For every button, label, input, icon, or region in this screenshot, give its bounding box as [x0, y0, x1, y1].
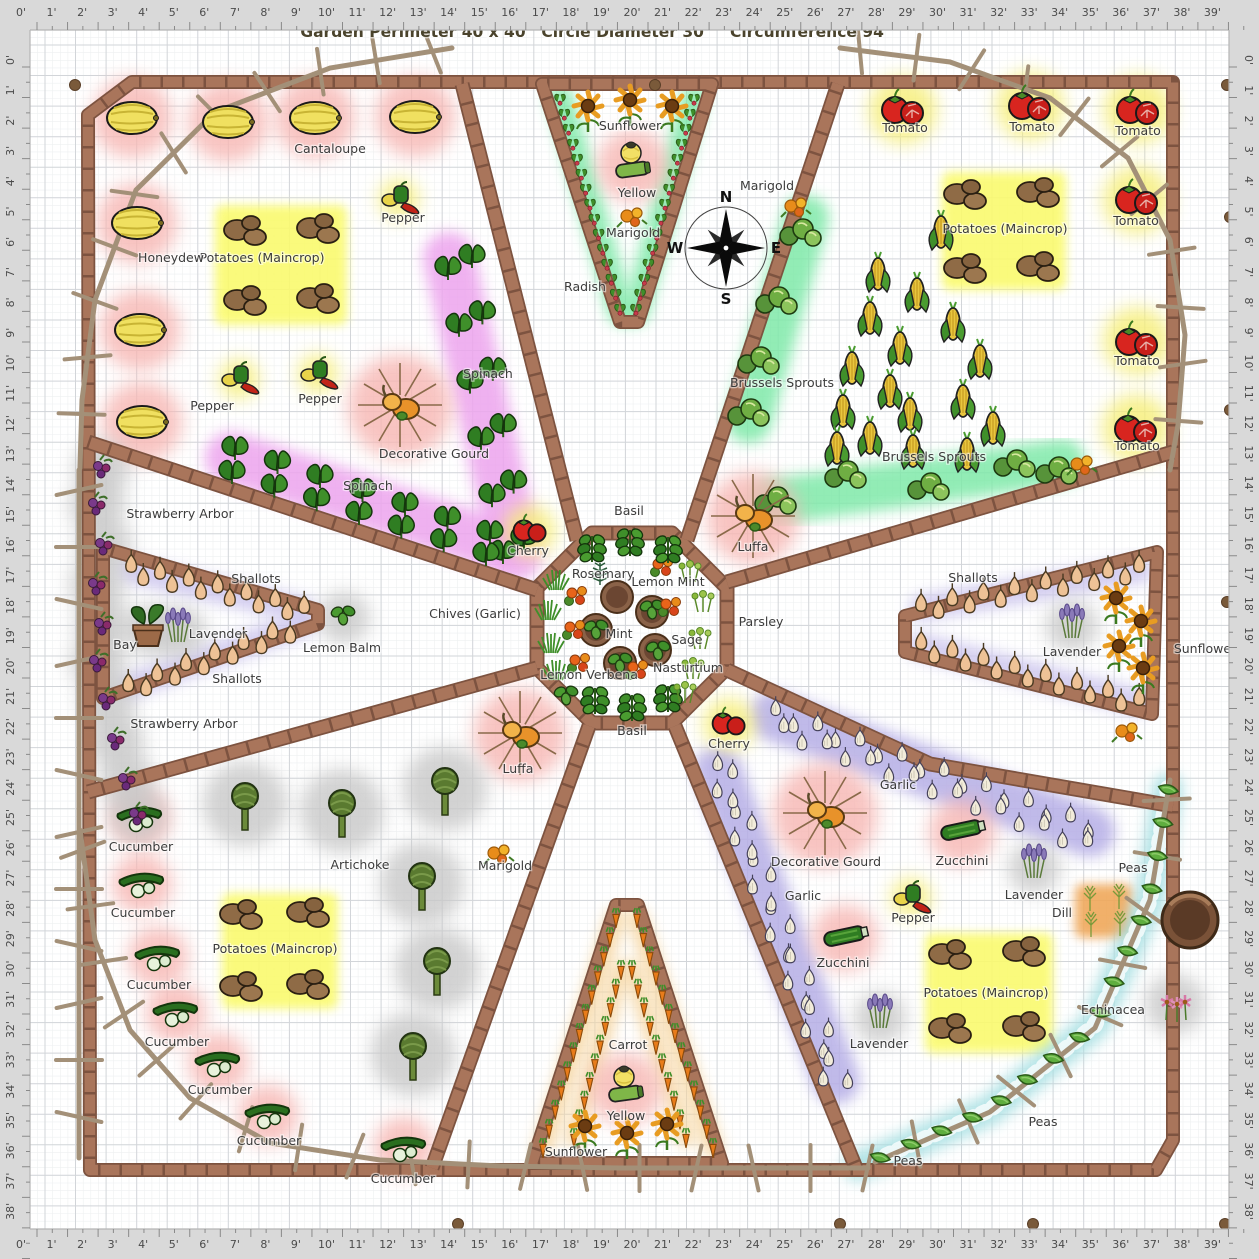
ruler-label: 0': [4, 55, 17, 65]
ruler-label: 3': [108, 6, 118, 19]
plant-label: Potatoes (Maincrop): [213, 941, 338, 956]
plant-label: Cucumber: [371, 1171, 436, 1186]
ruler-label: 22': [685, 6, 702, 19]
plant-label: Shallots: [231, 571, 281, 586]
plant-label: Potatoes (Maincrop): [943, 221, 1068, 236]
plant-label: Tomato: [1112, 213, 1159, 228]
plant-label: Lavender: [1005, 887, 1064, 902]
ruler-label: 30': [929, 6, 946, 19]
ruler-label: 15': [4, 506, 17, 523]
ruler-label: 16': [1242, 536, 1255, 553]
ruler-label: 38': [4, 1203, 17, 1220]
ruler-label: 7': [4, 267, 17, 277]
ruler-label: 5': [169, 1238, 179, 1251]
ruler-label: 6': [199, 6, 209, 19]
stake-dot: [650, 80, 661, 91]
plant-label: Lemon Balm: [303, 640, 381, 655]
ruler-label: 0': [16, 6, 26, 19]
plant-label: Artichoke: [331, 857, 390, 872]
ruler-label: 21': [4, 688, 17, 705]
ruler-label: 38': [1242, 1203, 1255, 1220]
plant-label: Zucchini: [816, 955, 869, 970]
plant-label: Shallots: [948, 570, 998, 585]
ruler-label: 24': [746, 1238, 763, 1251]
plant-label: Decorative Gourd: [771, 854, 881, 869]
plant-label: Tomato: [1113, 438, 1160, 453]
ruler-label: 1': [47, 1238, 57, 1251]
ruler-label: 20': [4, 657, 17, 674]
ruler-label: 16': [501, 1238, 518, 1251]
ruler-label: 34': [1051, 1238, 1068, 1251]
plant-label: Cherry: [507, 543, 549, 558]
plant-label: Sunflower: [545, 1144, 608, 1159]
plant-label: Lavender: [1043, 644, 1102, 659]
melon-icon[interactable]: [107, 102, 159, 134]
ruler-label: 20': [623, 1238, 640, 1251]
ruler-label: 5': [1242, 206, 1255, 216]
ruler-label: 23': [1242, 748, 1255, 765]
ruler-label: 21': [654, 1238, 671, 1251]
plant-label: Potatoes (Maincrop): [200, 250, 325, 265]
ruler-label: 9': [291, 6, 301, 19]
plant-label: Cucumber: [109, 839, 174, 854]
ruler-label: 3': [108, 1238, 118, 1251]
ruler-label: 10': [318, 1238, 335, 1251]
ruler-label: 19': [4, 627, 17, 644]
plant-label: Tomato: [1113, 353, 1160, 368]
plant-label: Pepper: [891, 910, 935, 925]
ruler-label: 18': [562, 1238, 579, 1251]
ruler-label: 2': [77, 6, 87, 19]
ruler-label: 8': [260, 1238, 270, 1251]
compass-south-label: S: [721, 290, 732, 308]
ruler-label: 37': [1242, 1173, 1255, 1190]
ruler-label: 32': [990, 1238, 1007, 1251]
ruler-label: 36': [1112, 1238, 1129, 1251]
melon-icon[interactable]: [112, 207, 164, 239]
ruler-label: 37': [1143, 6, 1160, 19]
ruler-label: 5': [169, 6, 179, 19]
ruler-label: 26': [807, 6, 824, 19]
plant-label: Sunflower: [1174, 641, 1237, 656]
ruler-label: 36': [4, 1142, 17, 1159]
garden-plan-page: CantaloupePepperPotatoes (Maincrop)Honey…: [0, 0, 1259, 1259]
ruler-label: 19': [1242, 627, 1255, 644]
pot-icon[interactable]: [601, 581, 633, 613]
ruler-label: 3': [1242, 146, 1255, 156]
ruler-label: 27': [837, 6, 854, 19]
ruler-label: 24': [4, 779, 17, 796]
ruler-label: 30': [1242, 960, 1255, 977]
ruler-label: 7': [1242, 267, 1255, 277]
ruler-label: 15': [1242, 506, 1255, 523]
stake-dot: [1028, 1219, 1039, 1230]
plant-label: Nasturtium: [653, 660, 723, 675]
ruler-label: 5': [4, 206, 17, 216]
ruler-label: 14': [440, 6, 457, 19]
ruler-label: 17': [532, 1238, 549, 1251]
ruler-label: 4': [138, 6, 148, 19]
ruler-label: 16': [501, 6, 518, 19]
ruler-label: 34': [4, 1082, 17, 1099]
ruler-label: 34': [1051, 6, 1068, 19]
plant-label: Spinach: [343, 478, 393, 493]
ruler-label: 36': [1242, 1142, 1255, 1159]
ruler-label: 25': [1242, 809, 1255, 826]
ruler-label: 9': [4, 328, 17, 338]
ruler-label: 31': [1242, 991, 1255, 1008]
ruler-label: 27': [1242, 870, 1255, 887]
ruler-label: 0': [16, 1238, 26, 1251]
plant-label: Garlic: [785, 888, 821, 903]
ruler-label: 9': [1242, 328, 1255, 338]
ruler-label: 28': [4, 900, 17, 917]
plant-label: Peas: [1029, 1114, 1058, 1129]
ruler-label: 33': [1021, 6, 1038, 19]
melon-icon[interactable]: [115, 314, 167, 346]
ruler-label: 22': [1242, 718, 1255, 735]
ruler-label: 6': [1242, 237, 1255, 247]
plant-label: Peas: [1119, 860, 1148, 875]
plant-label: Cucumber: [111, 905, 176, 920]
melon-icon[interactable]: [390, 101, 442, 133]
ruler-label: 2': [77, 1238, 87, 1251]
plant-label: Tomato: [881, 120, 928, 135]
basil-icon[interactable]: [576, 533, 608, 563]
ruler-label: 11': [349, 6, 366, 19]
plant-label: Garlic: [880, 777, 916, 792]
ruler-label: 1': [47, 6, 57, 19]
ruler-label: 19': [593, 1238, 610, 1251]
ruler-label: 31': [4, 991, 17, 1008]
plant-label: Strawberry Arbor: [130, 716, 238, 731]
ruler-label: 3': [4, 146, 17, 156]
ruler-label: 4': [4, 176, 17, 186]
ruler-label: 17': [532, 6, 549, 19]
ruler-label: 6': [199, 1238, 209, 1251]
ruler-label: 36': [1112, 6, 1129, 19]
ruler-label: 14': [440, 1238, 457, 1251]
ruler-label: 20': [1242, 657, 1255, 674]
plant-label: Dill: [1052, 905, 1072, 920]
ruler-label: 32': [4, 1021, 17, 1038]
plant-label: Decorative Gourd: [379, 446, 489, 461]
plant-label: Peas: [894, 1153, 923, 1168]
ruler-label: 18': [4, 597, 17, 614]
ruler-label: 33': [1242, 1051, 1255, 1068]
ruler-label: 13': [410, 1238, 427, 1251]
ruler-label: 16': [4, 536, 17, 553]
ruler-label: 33': [1021, 1238, 1038, 1251]
plant-label: Brussels Sprouts: [730, 375, 834, 390]
ruler-label: 21': [654, 6, 671, 19]
plant-label: Luffa: [738, 539, 769, 554]
plant-label: Shallots: [212, 671, 262, 686]
plant-label: Marigold: [606, 225, 660, 240]
plant-label: Cucumber: [127, 977, 192, 992]
ruler-label: 22': [685, 1238, 702, 1251]
plant-label: Zucchini: [935, 853, 988, 868]
ruler-label: 13': [410, 6, 427, 19]
ruler-label: 15': [471, 1238, 488, 1251]
plant-label: Lemon Mint: [631, 574, 704, 589]
basil-icon[interactable]: [616, 692, 648, 722]
ruler-label: 29': [898, 6, 915, 19]
ruler-label: 14': [1242, 476, 1255, 493]
plant-label: Cucumber: [188, 1082, 253, 1097]
garden-plan-canvas: CantaloupePepperPotatoes (Maincrop)Honey…: [0, 0, 1259, 1259]
ruler-label: 38': [1173, 1238, 1190, 1251]
ruler-label: 14': [4, 476, 17, 493]
ruler-label: 18': [1242, 597, 1255, 614]
plant-label: Marigold: [740, 178, 794, 193]
ruler-label: 8': [1242, 297, 1255, 307]
ruler-label: 26': [4, 839, 17, 856]
plant-label: Strawberry Arbor: [126, 506, 234, 521]
ruler-label: 31': [960, 1238, 977, 1251]
plant-label: Cherry: [708, 736, 750, 751]
plant-label: Yellow: [617, 185, 656, 200]
plant-label: Sunflower: [599, 118, 662, 133]
plant-label: Cucumber: [145, 1034, 210, 1049]
ruler-label: 26': [1242, 839, 1255, 856]
ruler-label: 2': [1242, 116, 1255, 126]
plant-label: Echinacea: [1081, 1002, 1145, 1017]
ruler-label: 29': [1242, 930, 1255, 947]
ruler-label: 0': [1242, 55, 1255, 65]
ruler-label: 26': [807, 1238, 824, 1251]
ruler-label: 20': [623, 6, 640, 19]
ruler-label: 19': [593, 6, 610, 19]
ruler-label: 23': [715, 6, 732, 19]
melon-icon[interactable]: [290, 102, 342, 134]
plant-label: Pepper: [381, 210, 425, 225]
basil-icon[interactable]: [614, 527, 646, 557]
plant-label: Mint: [605, 626, 632, 641]
plant-label: Marigold: [478, 858, 532, 873]
compass-east-label: E: [771, 239, 781, 257]
ruler-label: 37': [1143, 1238, 1160, 1251]
melon-icon[interactable]: [117, 406, 169, 438]
ruler-label: 32': [990, 6, 1007, 19]
plant-label: Chives (Garlic): [429, 606, 521, 621]
plant-label: Basil: [617, 723, 647, 738]
basil-icon[interactable]: [579, 685, 611, 715]
ruler-label: 32': [1242, 1021, 1255, 1038]
plant-label: Honeydew: [138, 250, 204, 265]
ruler-label: 9': [291, 1238, 301, 1251]
ruler-label: 11': [349, 1238, 366, 1251]
plant-label: Spinach: [463, 366, 513, 381]
ruler-label: 24': [1242, 779, 1255, 796]
ruler-label: 35': [1082, 1238, 1099, 1251]
ruler-label: 30': [929, 1238, 946, 1251]
ruler-label: 25': [776, 6, 793, 19]
basil-icon[interactable]: [652, 534, 684, 564]
ruler-label: 11': [4, 385, 17, 402]
ruler-label: 10': [1242, 354, 1255, 371]
plant-label: Lavender: [850, 1036, 909, 1051]
ruler-label: 18': [562, 6, 579, 19]
ruler-label: 28': [868, 6, 885, 19]
ruler-label: 24': [746, 6, 763, 19]
ruler-label: 21': [1242, 688, 1255, 705]
stake-dot: [70, 80, 81, 91]
ruler-label: 12': [1242, 415, 1255, 432]
ruler-label: 12': [379, 1238, 396, 1251]
plant-label: Carrot: [609, 1037, 648, 1052]
plant-label: Yellow: [606, 1108, 645, 1123]
ruler-label: 35': [4, 1112, 17, 1129]
ruler-label: 38': [1173, 6, 1190, 19]
ruler-label: 10': [4, 354, 17, 371]
compass-north-label: N: [720, 188, 733, 206]
melon-icon[interactable]: [203, 106, 255, 138]
plant-label: Pepper: [298, 391, 342, 406]
plant-label: Rosemary: [572, 566, 635, 581]
plant-label: Brussels Sprouts: [882, 449, 986, 464]
ruler-label: 27': [4, 870, 17, 887]
compass-west-label: W: [667, 239, 684, 257]
ruler-label: 28': [1242, 900, 1255, 917]
ruler-label: 17': [4, 567, 17, 584]
ruler-label: 29': [4, 930, 17, 947]
ruler-label: 25': [4, 809, 17, 826]
ruler-label: 6': [4, 237, 17, 247]
ruler-label: 27': [837, 1238, 854, 1251]
ruler-label: 4': [138, 1238, 148, 1251]
ruler-label: 29': [898, 1238, 915, 1251]
stake-dot: [835, 1219, 846, 1230]
ruler-label: 10': [318, 6, 335, 19]
plant-label: Tomato: [1114, 123, 1161, 138]
plant-label: Potatoes (Maincrop): [924, 985, 1049, 1000]
plant-label: Pepper: [190, 398, 234, 413]
ruler-label: 8': [4, 297, 17, 307]
ruler-label: 7': [230, 1238, 240, 1251]
ruler-label: 15': [471, 6, 488, 19]
ruler-label: 31': [960, 6, 977, 19]
ruler-label: 13': [4, 445, 17, 462]
ruler-label: 35': [1082, 6, 1099, 19]
plant-label: Cucumber: [237, 1133, 302, 1148]
plant-label: Lavender: [189, 626, 248, 641]
ruler-label: 35': [1242, 1112, 1255, 1129]
plant-label: Parsley: [739, 614, 784, 629]
plant-label: Sage: [671, 632, 703, 647]
bigpot-icon[interactable]: [1162, 892, 1218, 948]
ruler-label: 22': [4, 718, 17, 735]
ruler-label: 25': [776, 1238, 793, 1251]
ruler-label: 30': [4, 960, 17, 977]
plant-label: Luffa: [503, 761, 534, 776]
ruler-label: 12': [4, 415, 17, 432]
ruler-label: 13': [1242, 445, 1255, 462]
ruler-label: 8': [260, 6, 270, 19]
plant-label: Radish: [564, 279, 606, 294]
ruler-label: 1': [4, 85, 17, 95]
ruler-label: 12': [379, 6, 396, 19]
plant-label: Lemon Verbena: [540, 667, 638, 682]
plant-label: Cantaloupe: [294, 141, 366, 156]
plant-label: Tomato: [1008, 119, 1055, 134]
ruler-label: 39': [1204, 1238, 1221, 1251]
ruler-label: 37': [4, 1173, 17, 1190]
ruler-label: 4': [1242, 176, 1255, 186]
ruler-label: 2': [4, 116, 17, 126]
ruler-label: 33': [4, 1051, 17, 1068]
ruler-label: 39': [1204, 6, 1221, 19]
ruler-label: 17': [1242, 567, 1255, 584]
stake-dot: [453, 1219, 464, 1230]
ruler-label: 23': [715, 1238, 732, 1251]
ruler-label: 28': [868, 1238, 885, 1251]
ruler-label: 34': [1242, 1082, 1255, 1099]
ruler-label: 7': [230, 6, 240, 19]
plant-label: Bay: [113, 637, 137, 652]
ruler-label: 11': [1242, 385, 1255, 402]
plant-label: Basil: [614, 503, 644, 518]
ruler-label: 1': [1242, 85, 1255, 95]
ruler-label: 23': [4, 748, 17, 765]
